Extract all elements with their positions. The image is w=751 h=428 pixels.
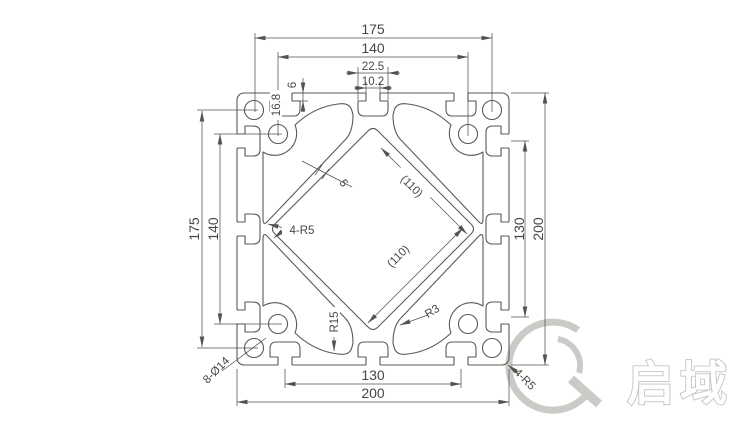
dim-top-inner: 140	[361, 40, 385, 56]
bolt-hole	[483, 339, 502, 358]
callout-corner-fillet: R3	[423, 303, 442, 321]
dim-slot-opening: 10.2	[362, 76, 384, 88]
dim-left-overall: 175	[186, 217, 202, 241]
technical-drawing-page: 启域	[0, 0, 751, 428]
bolt-hole	[459, 315, 478, 334]
callout-fillet-radius: R15	[329, 311, 341, 332]
dim-right-slots: 130	[511, 217, 527, 241]
dim-left-inner: 140	[205, 217, 221, 241]
callout-center-radius: 4-R5	[290, 225, 315, 237]
dim-bottom-slots: 130	[361, 367, 385, 383]
dim-slot-depth: 16.8	[271, 94, 283, 116]
qiyu-logo-icon: 启域	[509, 322, 733, 410]
dim-slot-cavity: 22.5	[362, 61, 384, 73]
dim-top-overall: 175	[361, 21, 385, 37]
aluminum-profile-drawing: 启域	[0, 0, 751, 428]
brand-text: 启域	[627, 357, 733, 410]
dimension-lines	[197, 33, 549, 406]
dim-wall-thickness: 5	[336, 178, 350, 190]
corner-cavity-tl	[263, 104, 353, 224]
callout-holes: 8-Ø14	[201, 355, 233, 387]
dim-bottom-overall: 200	[361, 385, 385, 401]
dim-right-overall: 200	[530, 217, 546, 241]
dim-slot-lip: 6	[287, 82, 299, 88]
